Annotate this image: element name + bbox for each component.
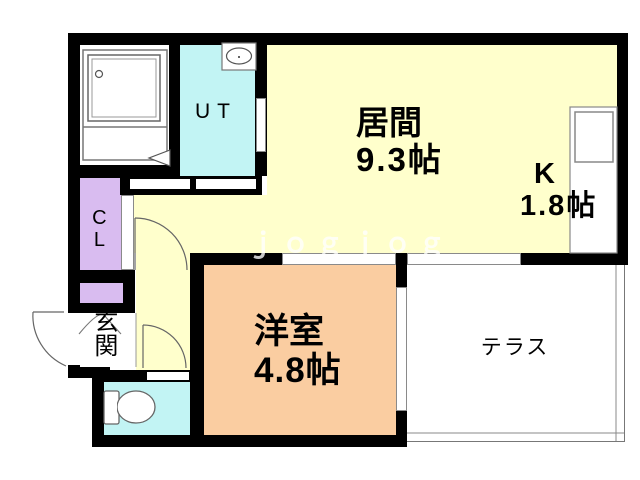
living-room-size: 9.3帖 [356,142,443,179]
closet-label: CL [88,207,110,251]
utility-label: UT [195,100,237,124]
wall-western-left [190,253,204,447]
wall-bath-ut-divider [169,45,180,177]
ut-sliding-door-panel-2 [196,179,256,189]
ut-living-window [256,98,266,152]
bathtub-icon [83,50,170,166]
toilet-room-floor [104,380,190,437]
terrace-label: テラス [470,336,560,360]
ut-sliding-door-panel-1 [130,179,190,189]
front-door-opening [68,313,80,365]
hall-upper-floor [120,195,267,253]
closet-door [121,195,134,270]
entrance-label: 玄関 [89,309,116,357]
western-room-label: 洋室 4.8帖 [254,312,342,390]
wall-living-bottom-right [521,253,628,265]
western-room-size: 4.8帖 [254,351,342,390]
entrance-closet-floor [80,283,123,303]
watermark-text: ｊｏｇｊｏｇ [248,221,452,260]
wall-right [617,33,628,265]
toilet-door [147,372,189,380]
hall-lower-floor [136,253,190,372]
door-swing-front-door [33,312,66,366]
floor-plan: ｊｏｇｊｏｇ 居間 9.3帖 K 1.8帖 洋室 4.8帖 テラス UT CL … [0,0,640,480]
western-terrace-window [396,287,407,411]
kitchen-size: 1.8帖 [520,190,597,222]
wall-top [68,33,628,45]
living-room-label: 居間 9.3帖 [356,105,443,179]
wall-post-terrace-lower [396,411,407,447]
wall-closet-bottom [68,270,135,283]
living-room-name: 居間 [356,105,443,142]
kitchen-label: K 1.8帖 [520,158,597,223]
wall-bottom [92,435,407,447]
kitchen-name: K [520,158,597,190]
western-room-name: 洋室 [254,312,342,351]
